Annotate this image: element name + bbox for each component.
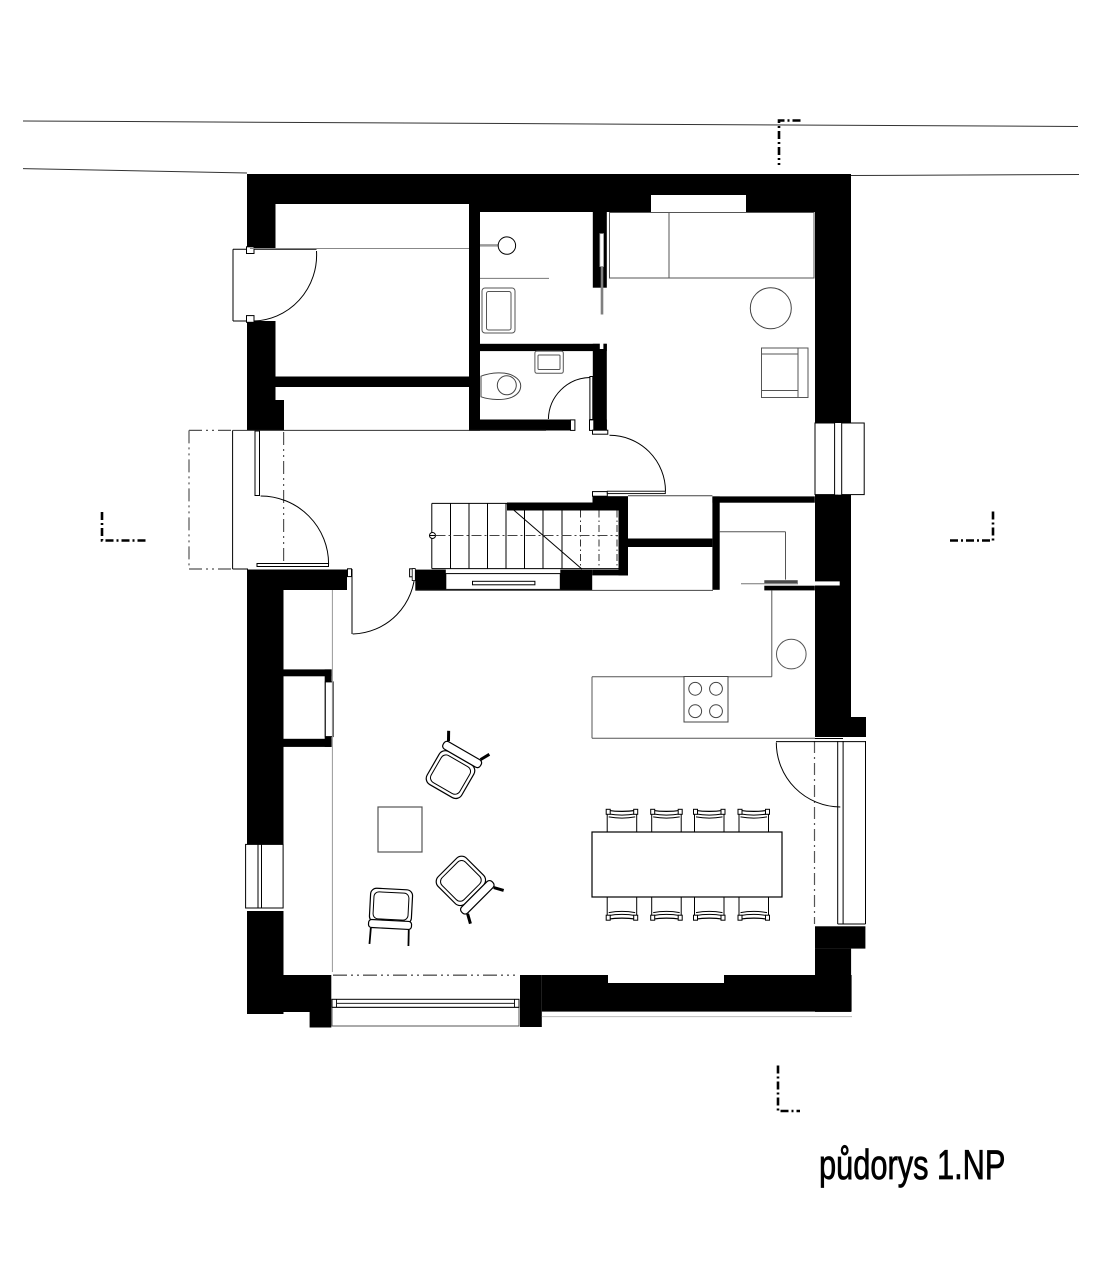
svg-text:půdorys 1.NP: půdorys 1.NP (819, 1141, 1005, 1188)
